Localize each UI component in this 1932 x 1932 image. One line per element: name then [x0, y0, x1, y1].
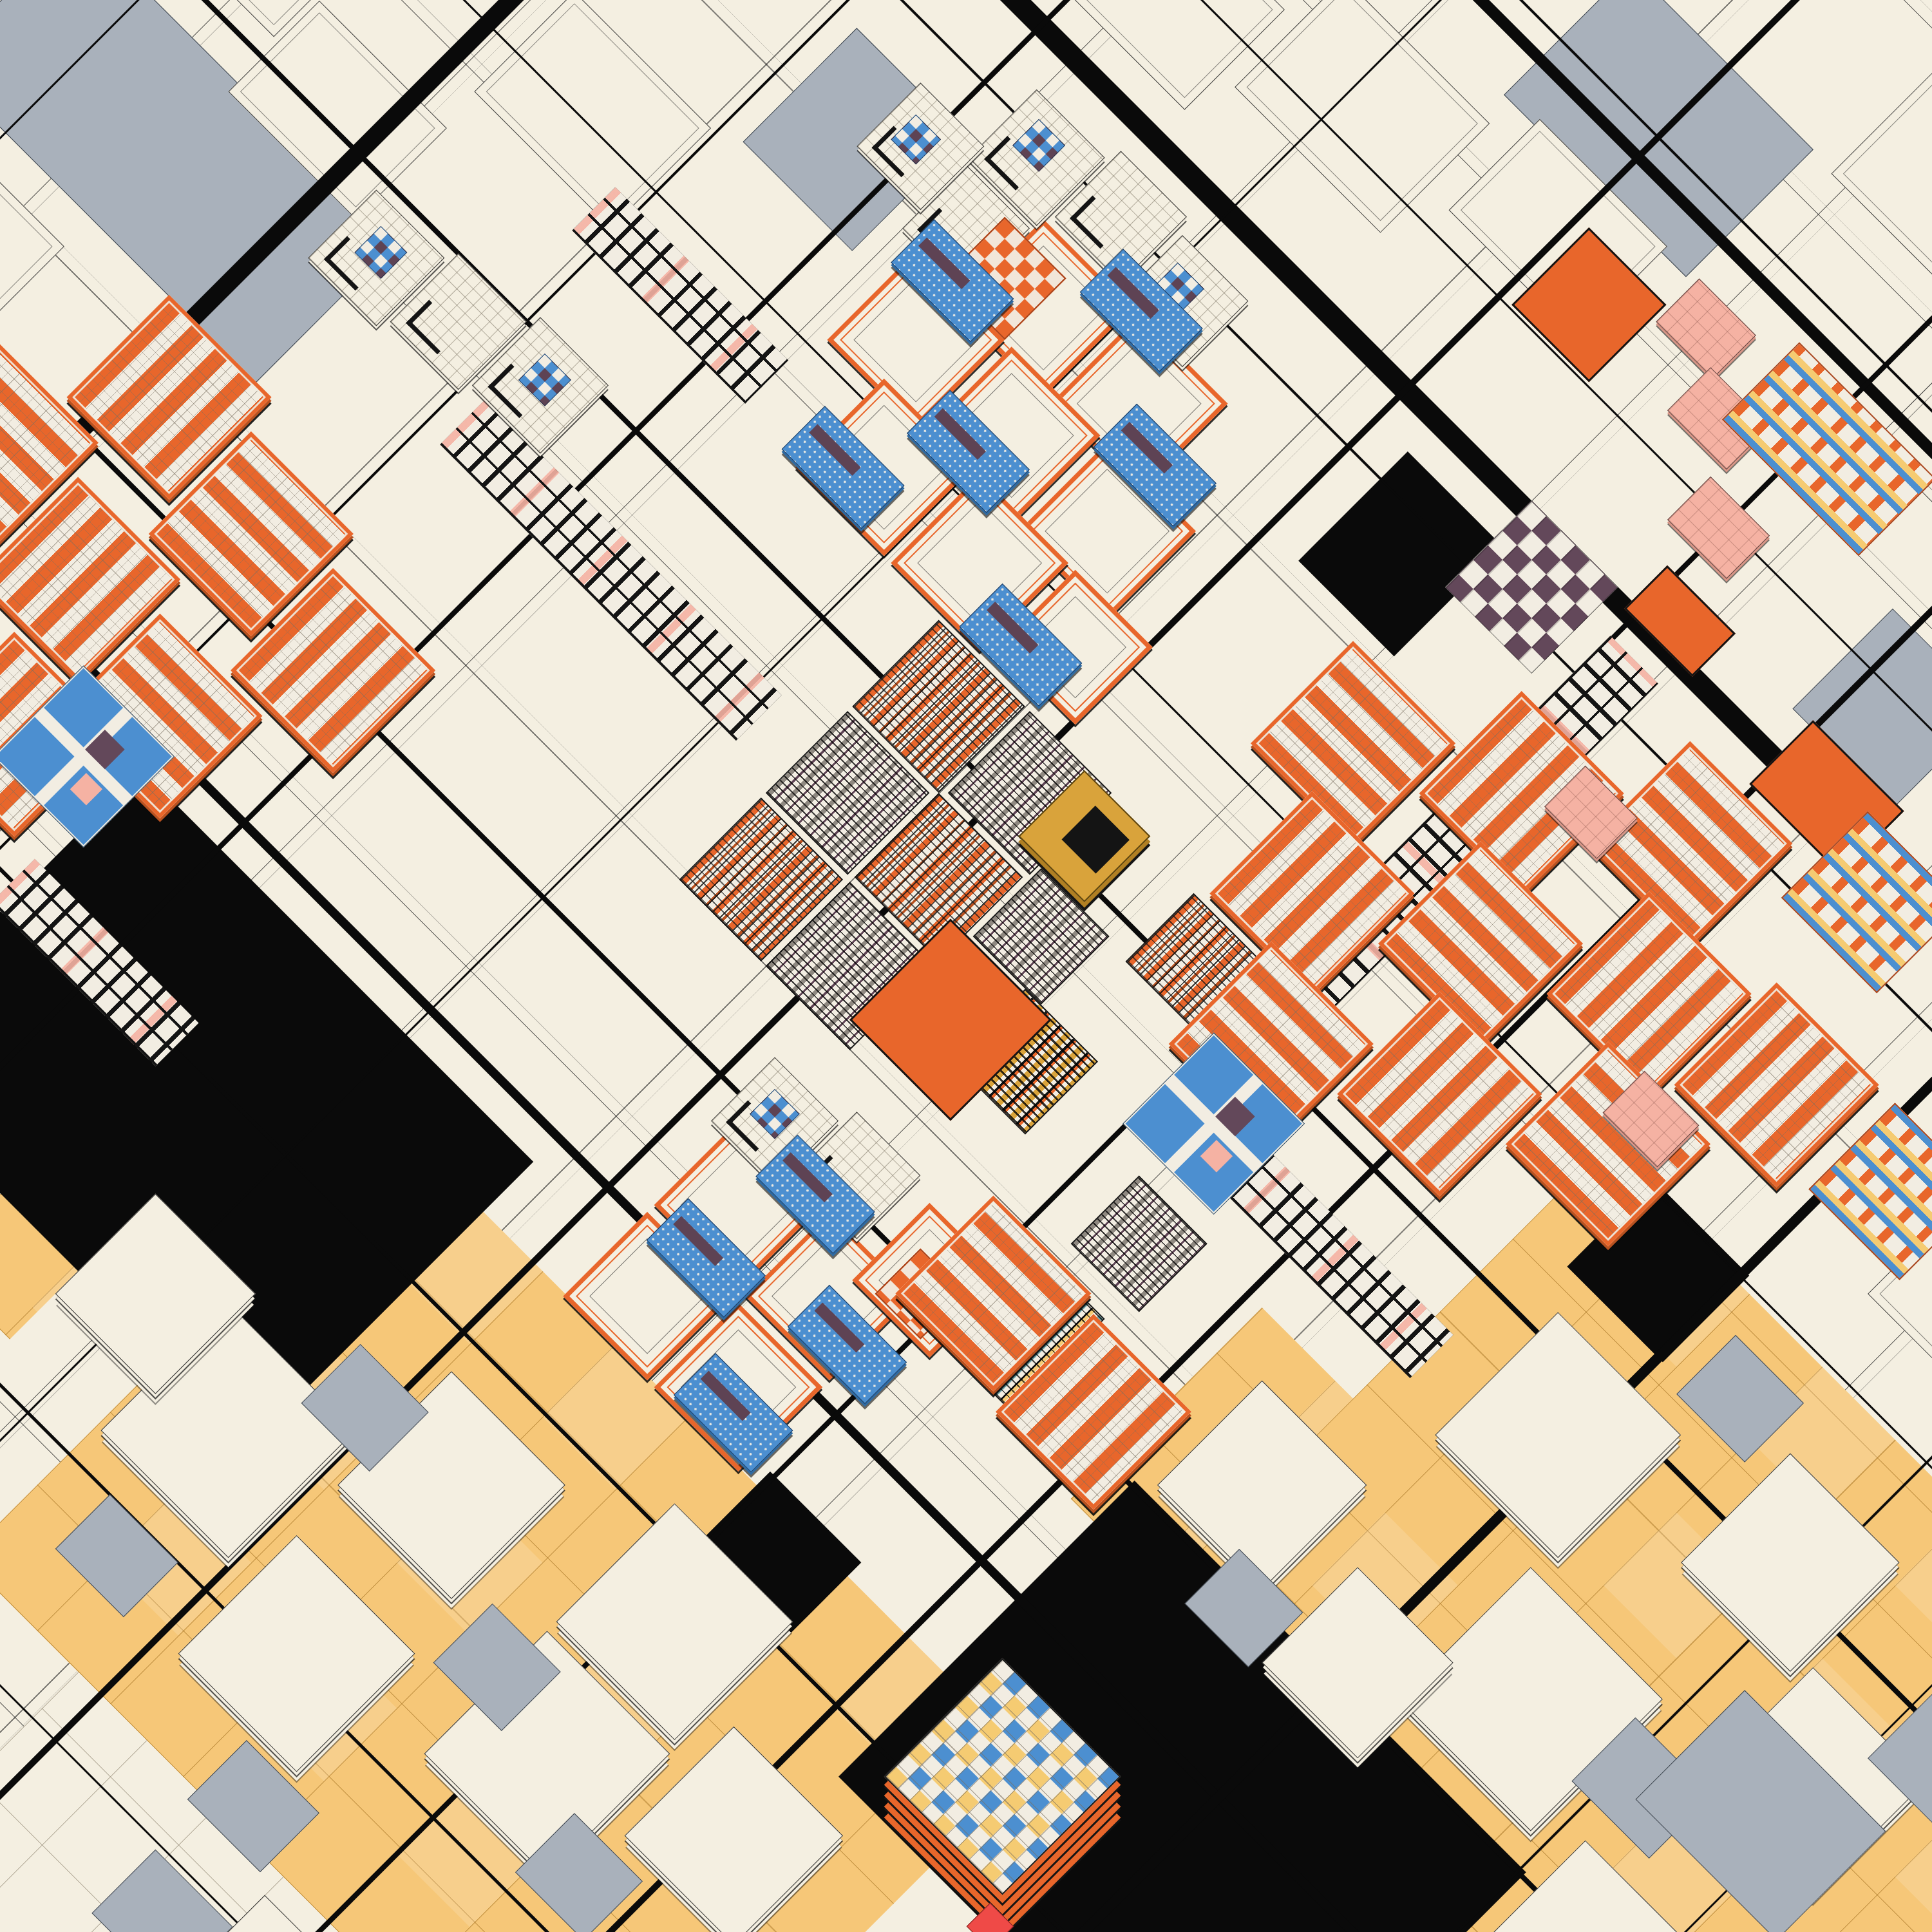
artwork-scene	[0, 0, 1932, 1932]
city	[0, 0, 1932, 1932]
